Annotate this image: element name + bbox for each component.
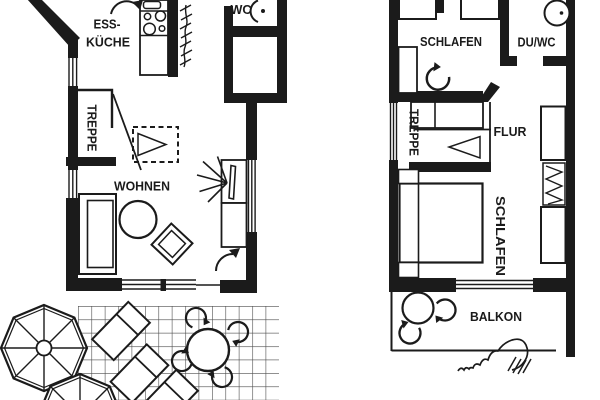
stairs-upper xyxy=(411,102,491,162)
ground-floor-unit xyxy=(1,0,287,400)
entrance-door-swing xyxy=(111,0,143,14)
armchair xyxy=(152,224,193,265)
bath-sink xyxy=(545,1,570,26)
wardrobe xyxy=(399,47,418,93)
terrace-door-swing xyxy=(216,248,240,271)
wc-area xyxy=(251,1,265,23)
floor-plan-drawing: ESS- KÜCHE WC TREPPE WOHNEN SCHLAFEN DU/… xyxy=(0,0,600,400)
label-kitchen-line1: ESS- xyxy=(94,17,121,32)
bedroom-bottom xyxy=(399,170,566,278)
label-wc: WC xyxy=(231,2,253,17)
door-swing-symbol xyxy=(421,62,454,94)
balcony-chair xyxy=(434,299,456,323)
bed-single xyxy=(461,0,499,19)
cabinet xyxy=(222,203,247,247)
living-room xyxy=(79,157,247,275)
label-balcony: BALKON xyxy=(470,309,522,324)
stair-direction-arrow xyxy=(449,137,480,159)
balcony-table xyxy=(403,293,434,324)
bed-double xyxy=(400,184,483,263)
label-bathroom: DU/WC xyxy=(518,35,557,50)
plant-trellis xyxy=(180,5,192,67)
balcony xyxy=(392,290,557,374)
terrace xyxy=(1,302,279,400)
hallway xyxy=(541,107,566,206)
stair-break-line xyxy=(113,94,141,170)
label-kitchen-line2: KÜCHE xyxy=(86,35,130,50)
tv-screen xyxy=(229,166,236,200)
hall-cabinet xyxy=(541,107,566,161)
label-stairs-ground: TREPPE xyxy=(85,105,100,152)
terrace-table xyxy=(187,329,229,371)
plant-flourish xyxy=(458,339,531,374)
floor-plan-canvas: ESS- KÜCHE WC TREPPE WOHNEN SCHLAFEN DU/… xyxy=(0,0,600,400)
coffee-table xyxy=(120,201,157,238)
label-stairs-upper: TREPPE xyxy=(407,109,422,156)
label-hallway: FLUR xyxy=(494,124,528,139)
stair-direction-arrow xyxy=(138,134,166,156)
bathroom xyxy=(545,1,570,26)
bed-single xyxy=(399,0,436,19)
label-bedroom-bottom: SCHLAFEN xyxy=(493,196,508,276)
label-living: WOHNEN xyxy=(114,179,170,194)
nightstand xyxy=(399,263,419,278)
wc-sink xyxy=(251,1,258,23)
label-bedroom-top: SCHLAFEN xyxy=(420,34,482,49)
nightstand xyxy=(399,170,419,184)
wardrobe xyxy=(541,207,566,263)
